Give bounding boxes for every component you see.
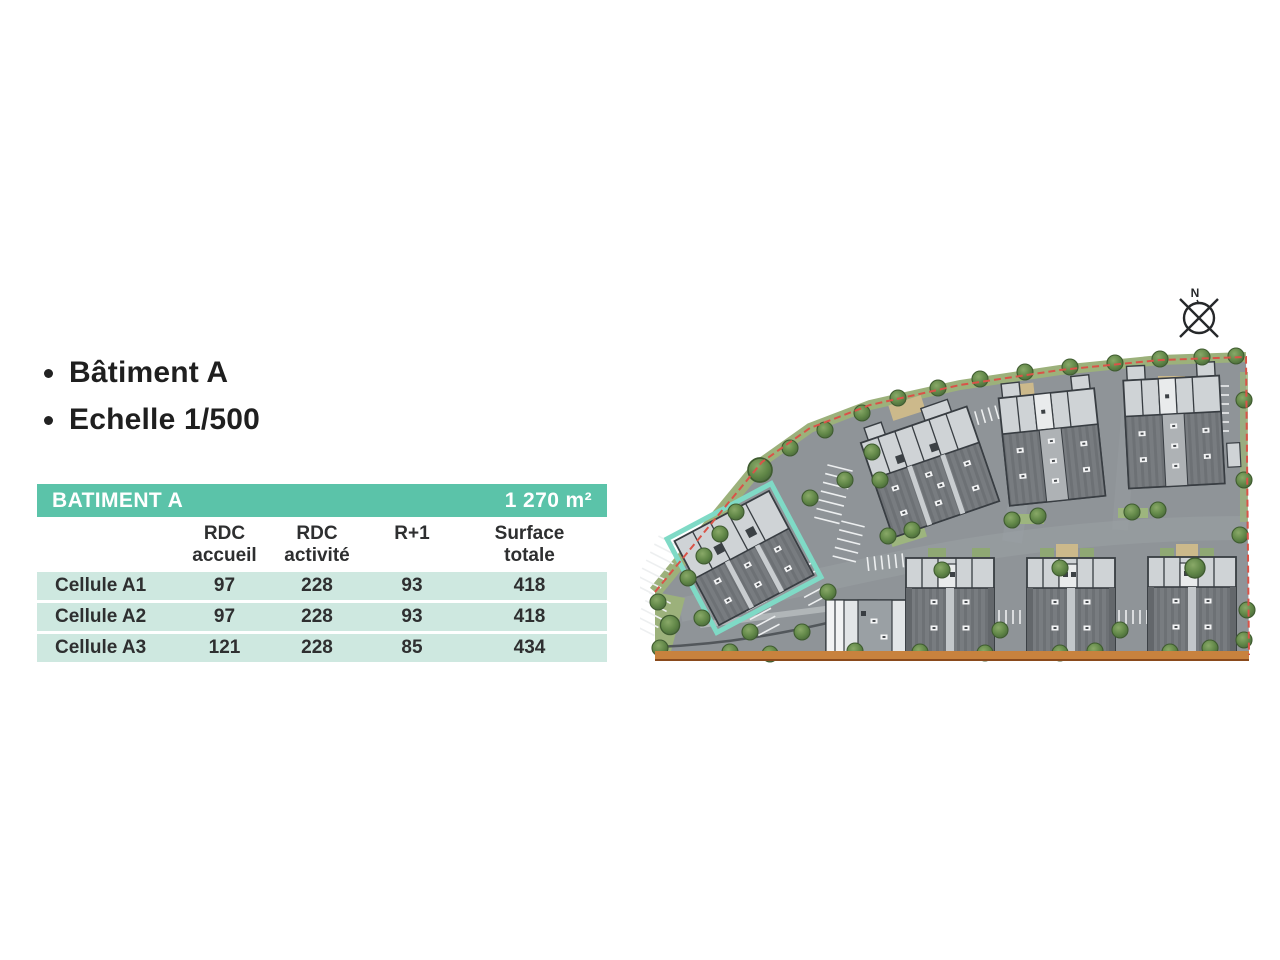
compass-icon: N xyxy=(1180,286,1218,337)
bullet-label: Bâtiment A xyxy=(69,356,228,390)
site-plan: N xyxy=(640,280,1280,680)
table-row: Cellule A1 97 228 93 418 xyxy=(37,572,607,600)
bullet-item-echelle: Echelle 1/500 xyxy=(44,403,260,437)
column-header-rdc-accueil: RDC accueil xyxy=(187,523,262,569)
building-cluster-bottom-2 xyxy=(1027,558,1115,654)
building-service xyxy=(826,600,910,654)
column-header-rdc-activite: RDC activité xyxy=(262,523,372,569)
bullet-dot xyxy=(44,416,53,425)
table-title: BATIMENT A xyxy=(52,489,183,513)
column-header-r1: R+1 xyxy=(372,523,452,569)
table-row: Cellule A3 121 228 85 434 xyxy=(37,634,607,662)
bullet-dot xyxy=(44,369,53,378)
compass-north-label: N xyxy=(1191,286,1200,300)
bullet-label: Echelle 1/500 xyxy=(69,403,260,437)
building-cluster-top-centre xyxy=(997,374,1105,505)
table-column-headers: RDC accueil RDC activité R+1 Surface tot… xyxy=(37,517,607,569)
column-header-empty xyxy=(37,523,187,569)
table-total-area: 1 270 m² xyxy=(505,489,592,513)
table-row: Cellule A2 97 228 93 418 xyxy=(37,603,607,631)
surface-table: BATIMENT A 1 270 m² RDC accueil RDC acti… xyxy=(37,484,607,662)
bullet-list: Bâtiment A Echelle 1/500 xyxy=(44,356,260,450)
bullet-item-batiment: Bâtiment A xyxy=(44,356,260,390)
table-header: BATIMENT A 1 270 m² xyxy=(37,484,607,517)
column-header-surface-totale: Surface totale xyxy=(452,523,607,569)
